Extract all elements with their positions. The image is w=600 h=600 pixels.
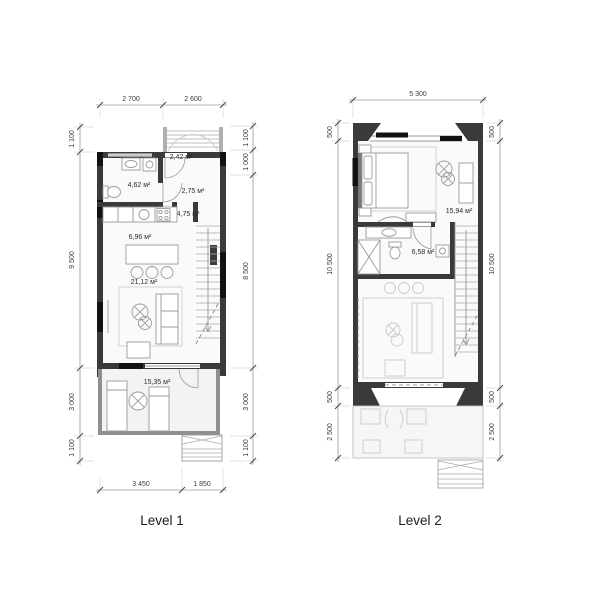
dresser <box>406 213 436 222</box>
dim-label: 1 100 <box>69 439 76 457</box>
level1-plan: 2 700 2 600 3 450 1 850 1 100 9 500 3 00… <box>69 96 258 528</box>
toilet-tank <box>389 242 401 247</box>
wardrobe <box>459 163 473 183</box>
window <box>220 152 226 166</box>
dim-label: 3 000 <box>243 393 250 411</box>
level1-dim-right: 1 100 1 000 8 500 3 000 1 100 <box>243 122 256 465</box>
level2-dim-left: 500 10 500 500 2 500 <box>327 119 341 462</box>
dim-label: 10 500 <box>327 253 334 275</box>
level1-dim-bottom: 3 450 1 850 <box>96 481 227 493</box>
level2-dim-right: 500 10 500 500 2 500 <box>489 119 503 462</box>
level1-caption: Level 1 <box>140 513 184 528</box>
sun-lounger <box>107 381 127 431</box>
nightstand <box>359 145 371 153</box>
dim-label: 1 100 <box>243 439 250 457</box>
pier <box>456 388 483 406</box>
dim-label: 8 500 <box>243 262 250 280</box>
level1-dim-top: 2 700 2 600 <box>96 96 227 108</box>
room-area-label: 4,75 м² <box>177 211 200 218</box>
dim-label: 10 500 <box>489 253 496 275</box>
dim-label: 1 000 <box>243 153 250 171</box>
room-area-label: 6,96 м² <box>129 234 152 241</box>
dim-label: 2 600 <box>184 96 202 103</box>
window <box>220 252 226 298</box>
pier <box>353 388 380 406</box>
level1-dim-left: 1 100 9 500 3 000 1 100 <box>69 123 83 465</box>
wardrobe <box>459 183 473 203</box>
window <box>119 363 143 369</box>
level2-caption: Level 2 <box>398 513 442 528</box>
window <box>376 133 408 138</box>
room-area-label: 2,75 м² <box>182 188 205 195</box>
coffee-table <box>127 342 150 358</box>
dim-label: 2 500 <box>327 423 334 441</box>
dim-label: 500 <box>327 126 334 138</box>
level2-plan: 5 300 500 10 500 500 2 500 500 10 500 50… <box>327 91 504 528</box>
stair-rail <box>163 127 167 153</box>
dim-label: 3 000 <box>69 393 76 411</box>
dim-label: 1 100 <box>243 129 250 147</box>
dim-label: 1 100 <box>69 130 76 148</box>
headboard <box>358 153 362 208</box>
dim-label: 5 300 <box>409 91 427 98</box>
nightstand <box>359 208 371 216</box>
room-area-label: 15,35 м² <box>144 379 171 386</box>
room-area-label: 6,58 м² <box>412 249 435 256</box>
room-area-label: 21,12 м² <box>131 279 158 286</box>
toilet <box>108 187 121 198</box>
dim-label: 2 500 <box>489 423 496 441</box>
pier <box>353 123 381 141</box>
dim-label: 1 850 <box>193 481 211 488</box>
window <box>97 302 103 332</box>
kitchen-island <box>126 245 178 264</box>
dim-label: 500 <box>489 126 496 138</box>
room-area-label: 15,94 м² <box>446 208 473 215</box>
external-stairs-level2 <box>438 460 483 488</box>
terrace-level1: 15,35 м² <box>98 369 220 435</box>
partition <box>97 202 163 207</box>
entry-stairs <box>163 127 223 153</box>
toilet <box>390 247 400 259</box>
room-area-label: 2,42 м² <box>170 154 193 161</box>
bed <box>362 153 408 208</box>
floor-plan-drawing: 2 700 2 600 3 450 1 850 1 100 9 500 3 00… <box>0 0 600 600</box>
partition <box>158 158 163 183</box>
door-gap <box>413 223 431 227</box>
dim-label: 500 <box>327 391 334 403</box>
dim-label: 500 <box>489 391 496 403</box>
roof-terrace-below <box>353 406 483 458</box>
roof-floor <box>353 406 483 458</box>
floor-plan-sheet: 2 700 2 600 3 450 1 850 1 100 9 500 3 00… <box>0 0 600 600</box>
dim-label: 9 500 <box>69 251 76 269</box>
dim-label: 2 700 <box>122 96 140 103</box>
window <box>353 158 359 186</box>
washing-machine <box>143 158 156 171</box>
dim-label: 3 450 <box>132 481 150 488</box>
sun-lounger <box>149 387 169 431</box>
sofa <box>156 294 178 344</box>
stair-rail <box>219 127 223 153</box>
room-area-label: 4,62 м² <box>128 182 151 189</box>
washer <box>436 245 449 257</box>
window <box>97 152 103 166</box>
level2-dim-top: 5 300 <box>349 91 487 103</box>
window <box>440 136 462 141</box>
partition <box>210 245 217 265</box>
external-stairs-level1 <box>182 435 222 461</box>
